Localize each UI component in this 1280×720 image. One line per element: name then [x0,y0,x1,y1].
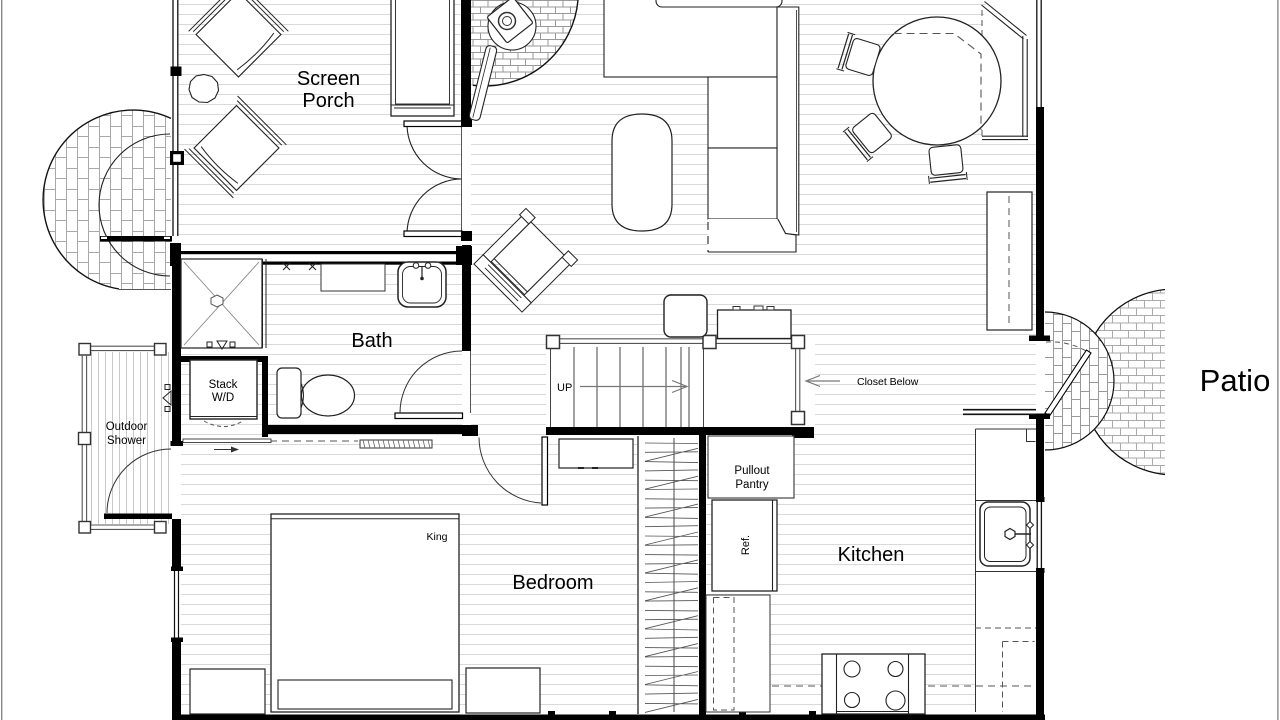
svg-text:Shower: Shower [107,435,146,447]
svg-text:Ref.: Ref. [740,535,752,555]
svg-text:Screen: Screen [297,68,360,90]
svg-text:Bath: Bath [351,330,392,352]
svg-text:Stack: Stack [209,379,238,391]
svg-text:W/D: W/D [212,392,234,404]
svg-text:King: King [426,531,447,543]
svg-text:Porch: Porch [302,90,354,112]
svg-text:Outdoor: Outdoor [106,421,148,433]
svg-text:Patio: Patio [1200,363,1271,398]
svg-text:Pullout: Pullout [734,465,770,477]
svg-text:Bedroom: Bedroom [512,572,593,594]
svg-text:Closet Below: Closet Below [857,376,919,388]
svg-text:Pantry: Pantry [735,479,768,491]
svg-text:Kitchen: Kitchen [838,544,905,566]
svg-text:UP: UP [557,382,572,394]
